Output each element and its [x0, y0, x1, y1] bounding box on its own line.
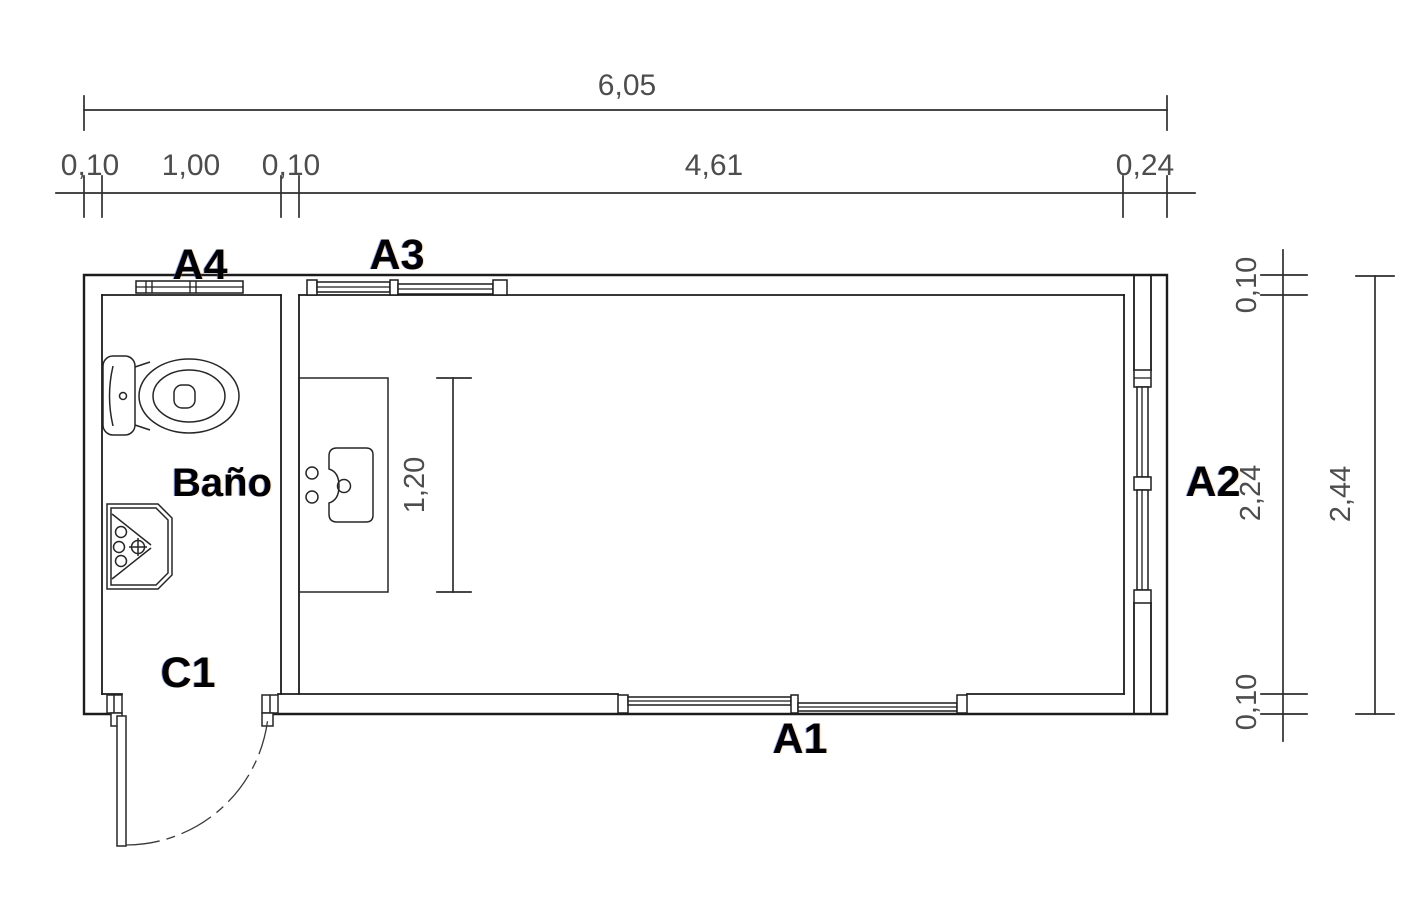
floor-plan-canvas: 6,05 0,10 1,00 0,10 4,61 0,24: [0, 0, 1428, 904]
label-window-a2: A2: [1186, 458, 1241, 506]
dim-total-height-text: 2,44: [1325, 466, 1357, 522]
toilet-bowl-inner: [153, 370, 225, 422]
label-window-a1: A1: [773, 715, 828, 763]
dimension-right-total: 2,44: [1325, 276, 1394, 714]
dim-seg-text: 4,61: [685, 149, 743, 182]
window-mullion: [307, 280, 317, 295]
counter: [299, 378, 388, 592]
window-a3: [307, 280, 507, 295]
dimension-top-total: 6,05: [84, 69, 1167, 130]
dimension-counter: 1,20: [399, 378, 471, 592]
plan-labels: A4 A3 A1 A2 Baño C1: [161, 231, 1241, 763]
window-mullion: [791, 695, 798, 713]
toilet-seat-line: [135, 362, 150, 367]
dim-seg-text: 1,00: [162, 149, 220, 182]
window-mullion: [618, 695, 628, 713]
window-mullion: [957, 695, 967, 713]
window-a1: [618, 695, 967, 713]
dim-wall-top-text: 0,10: [1231, 257, 1263, 313]
toilet-tank-button: [120, 393, 127, 400]
counter-outline: [299, 378, 388, 592]
kitchen-sink-tap: [306, 467, 318, 479]
dim-total-width-text: 6,05: [598, 69, 656, 102]
dim-seg-text: 0,24: [1116, 149, 1174, 182]
door-swing-arc: [126, 717, 268, 845]
door-c1: [107, 695, 278, 846]
dimension-right-inner: 0,10 2,24 0,10: [1231, 250, 1307, 741]
dim-counter-text: 1,20: [399, 457, 431, 513]
sink-tap: [116, 556, 127, 567]
window-mullion: [493, 280, 507, 295]
toilet-tank-curve: [110, 366, 114, 426]
window-mullion: [1134, 590, 1151, 603]
kitchen-sink-tap: [306, 491, 318, 503]
kitchen-sink: [306, 448, 373, 522]
toilet: [103, 356, 239, 435]
label-window-a4: A4: [173, 241, 228, 289]
door-leaf: [117, 716, 126, 846]
sink-tap: [114, 542, 125, 553]
dim-seg-text: 0,10: [262, 149, 320, 182]
dim-wall-bottom-text: 0,10: [1231, 674, 1263, 730]
window-a2: [1134, 370, 1151, 603]
label-door-c1: C1: [161, 649, 216, 697]
sink-tap: [116, 527, 127, 538]
label-bathroom: Baño: [172, 461, 272, 505]
toilet-flush: [174, 385, 195, 408]
toilet-seat-line: [135, 425, 150, 430]
window-mullion: [390, 280, 398, 295]
bathroom-sink: [107, 504, 172, 589]
sink-basin-line: [112, 514, 151, 545]
dimension-top-segments: 0,10 1,00 0,10 4,61 0,24: [56, 149, 1195, 217]
window-mullion: [1134, 477, 1151, 490]
dim-seg-text: 0,10: [61, 149, 119, 182]
label-window-a3: A3: [370, 231, 425, 279]
